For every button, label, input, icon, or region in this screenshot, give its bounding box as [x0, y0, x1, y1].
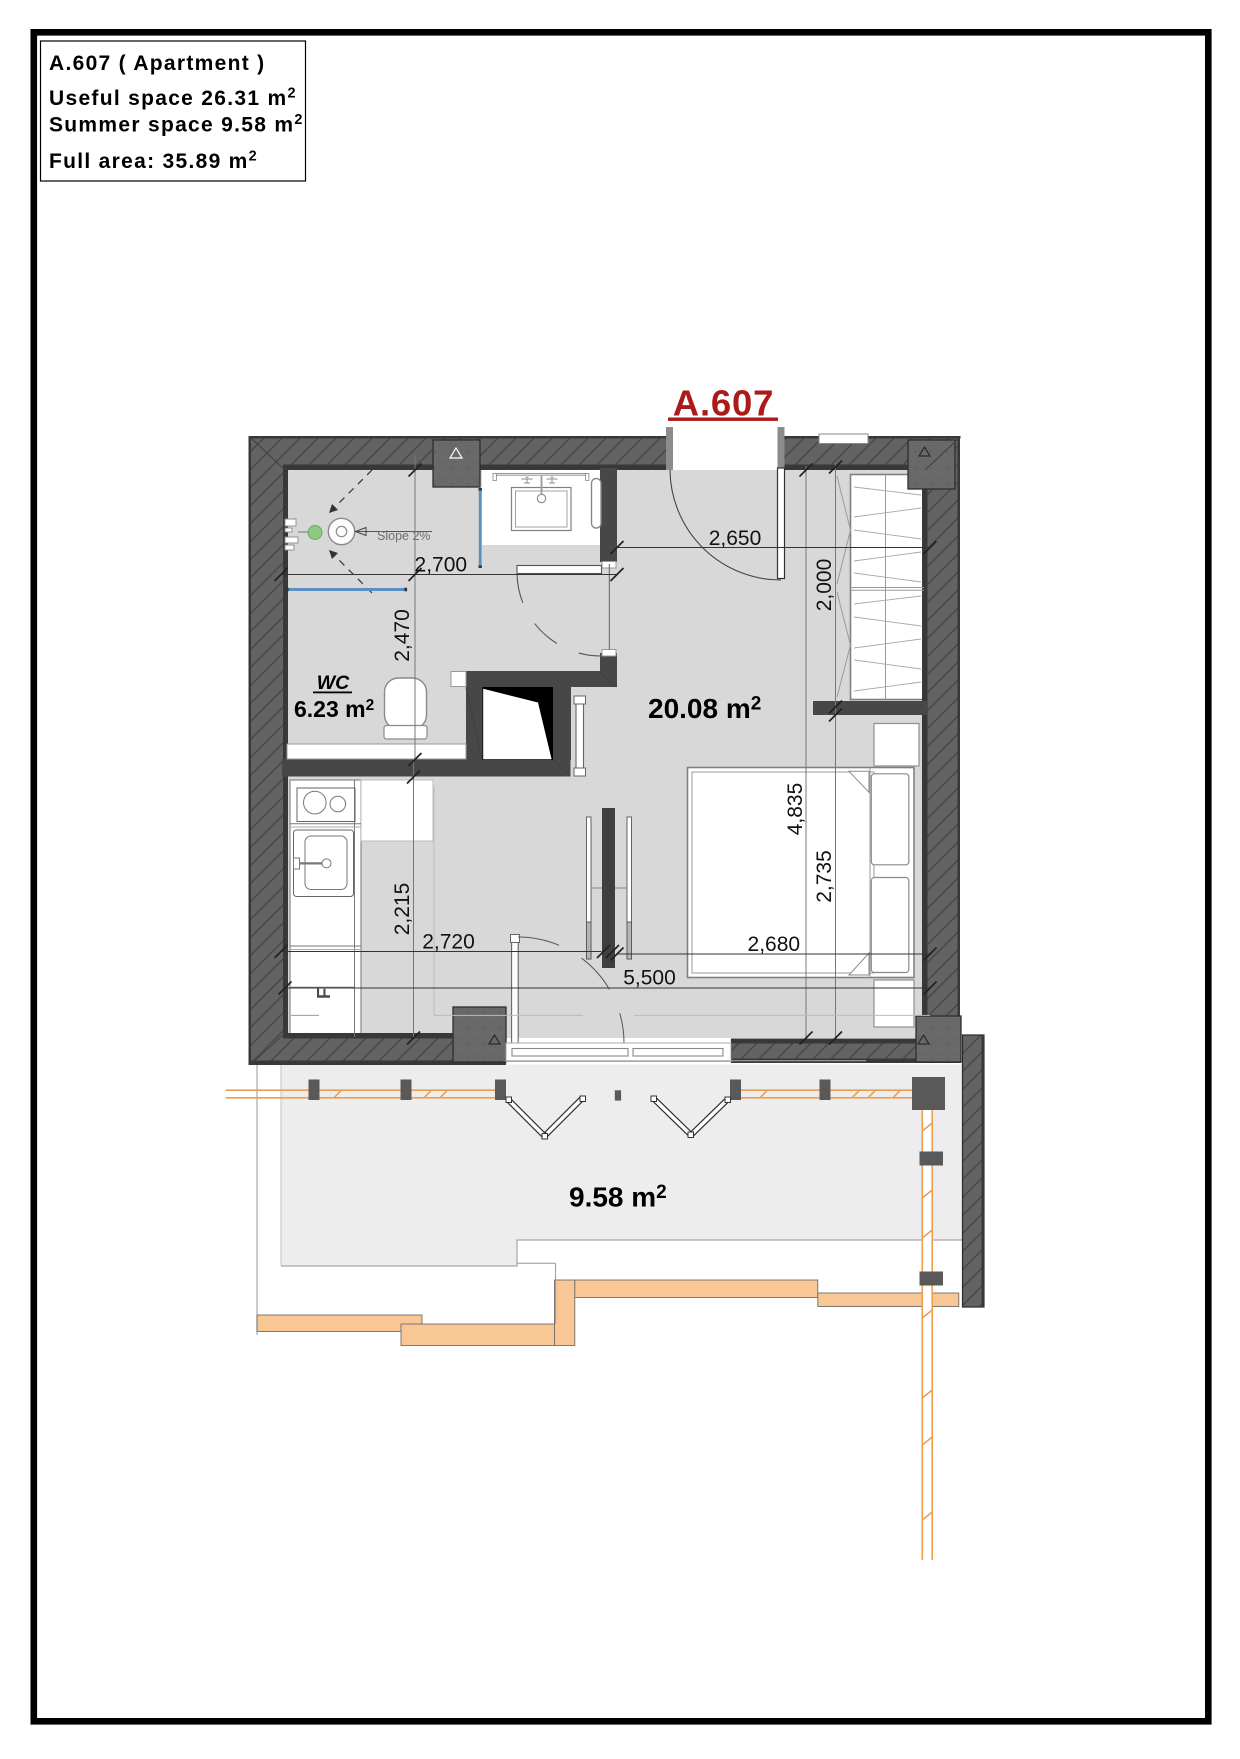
svg-text:2,700: 2,700 [415, 554, 468, 577]
svg-text:WC: WC [317, 672, 350, 694]
svg-text:2,735: 2,735 [813, 850, 836, 903]
svg-text:2,000: 2,000 [813, 559, 836, 612]
svg-text:Full area: 35.89 m2: Full area: 35.89 m2 [49, 149, 258, 174]
svg-text:A.607 ( Apartment ): A.607 ( Apartment ) [49, 52, 265, 75]
svg-text:2,720: 2,720 [422, 931, 475, 954]
svg-text:5,500: 5,500 [623, 967, 676, 990]
svg-text:F: F [314, 988, 334, 999]
svg-text:Useful space 26.31 m2: Useful space 26.31 m2 [49, 86, 297, 111]
svg-text:Slope 2%: Slope 2% [377, 529, 431, 543]
svg-text:2,680: 2,680 [748, 933, 801, 956]
svg-text:A.607: A.607 [673, 383, 774, 424]
svg-text:2,470: 2,470 [391, 609, 414, 662]
svg-text:6.23 m2: 6.23 m2 [294, 696, 374, 722]
svg-text:9.58 m2: 9.58 m2 [569, 1182, 667, 1213]
svg-text:20.08 m2: 20.08 m2 [648, 693, 761, 724]
svg-text:Summer space 9.58 m2: Summer space 9.58 m2 [49, 112, 304, 137]
svg-text:2,650: 2,650 [709, 527, 762, 550]
svg-text:2,215: 2,215 [391, 883, 414, 936]
svg-text:4,835: 4,835 [784, 783, 807, 836]
